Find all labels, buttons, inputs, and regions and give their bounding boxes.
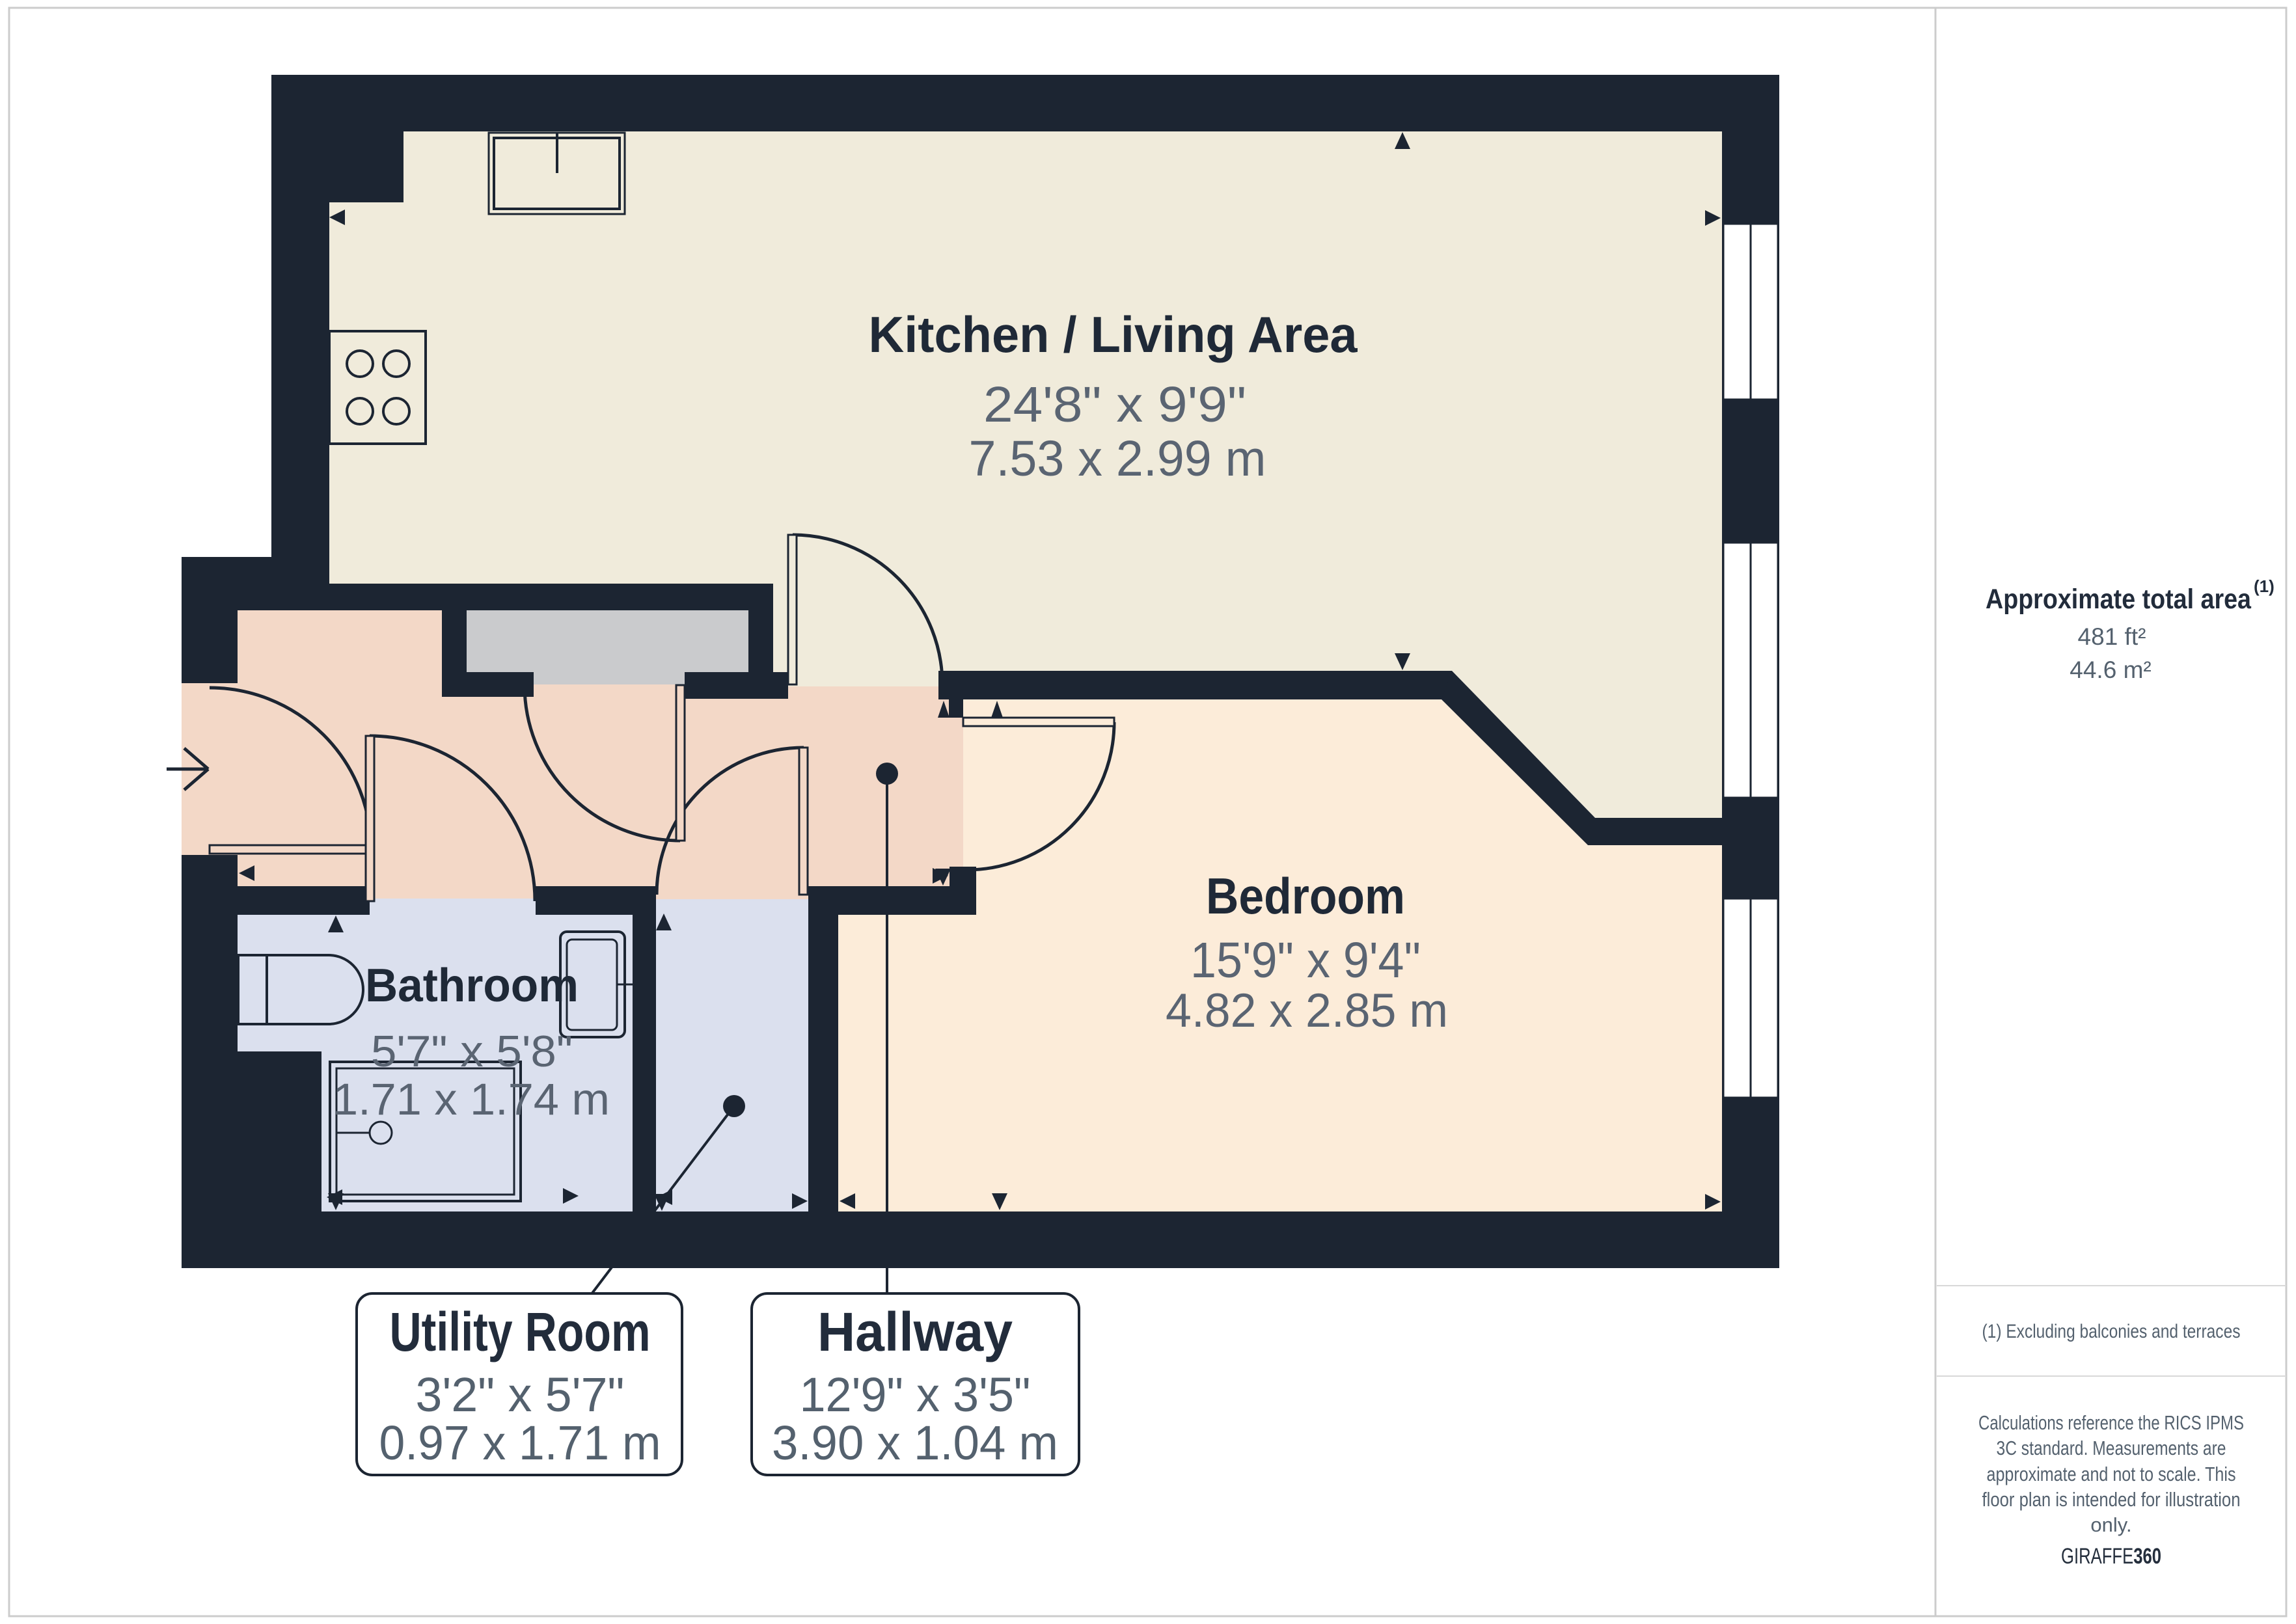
svg-text:Kitchen / Living Area: Kitchen / Living Area [869, 306, 1358, 363]
svg-text:12'9" x 3'5": 12'9" x 3'5" [800, 1368, 1031, 1422]
svg-text:(1) Excluding balconies and te: (1) Excluding balconies and terraces [1982, 1321, 2241, 1342]
svg-text:481 ft²: 481 ft² [2078, 623, 2146, 650]
svg-text:4.82 x 2.85 m: 4.82 x 2.85 m [1166, 984, 1448, 1037]
svg-text:1.71 x 1.74 m: 1.71 x 1.74 m [333, 1074, 610, 1124]
svg-text:GIRAFFE360: GIRAFFE360 [2061, 1544, 2161, 1569]
svg-text:approximate and not to scale.: approximate and not to scale. This [1987, 1463, 2236, 1485]
svg-text:0.97 x 1.71 m: 0.97 x 1.71 m [379, 1416, 661, 1470]
svg-text:15'9" x 9'4": 15'9" x 9'4" [1190, 932, 1421, 988]
svg-text:3C standard. Measurements are: 3C standard. Measurements are [1997, 1437, 2226, 1459]
svg-text:Hallway: Hallway [817, 1301, 1013, 1362]
svg-text:only.: only. [2090, 1513, 2131, 1536]
svg-text:44.6 m²: 44.6 m² [2070, 656, 2151, 683]
svg-text:3.90 x 1.04 m: 3.90 x 1.04 m [772, 1416, 1058, 1470]
svg-text:5'7" x 5'8": 5'7" x 5'8" [371, 1027, 573, 1076]
svg-text:Approximate total area: Approximate total area [1986, 584, 2252, 615]
svg-text:floor plan is intended for ill: floor plan is intended for illustration [1982, 1488, 2241, 1511]
svg-text:3'2" x 5'7": 3'2" x 5'7" [416, 1368, 625, 1422]
svg-text:Utility Room: Utility Room [390, 1301, 651, 1362]
svg-text:Bathroom: Bathroom [365, 960, 579, 1012]
svg-text:7.53 x 2.99 m: 7.53 x 2.99 m [969, 431, 1266, 487]
svg-text:(1): (1) [2254, 576, 2275, 596]
svg-text:24'8" x 9'9": 24'8" x 9'9" [983, 377, 1246, 433]
svg-text:Calculations reference the RIC: Calculations reference the RICS IPMS [1978, 1411, 2244, 1434]
svg-text:Bedroom: Bedroom [1206, 867, 1405, 925]
